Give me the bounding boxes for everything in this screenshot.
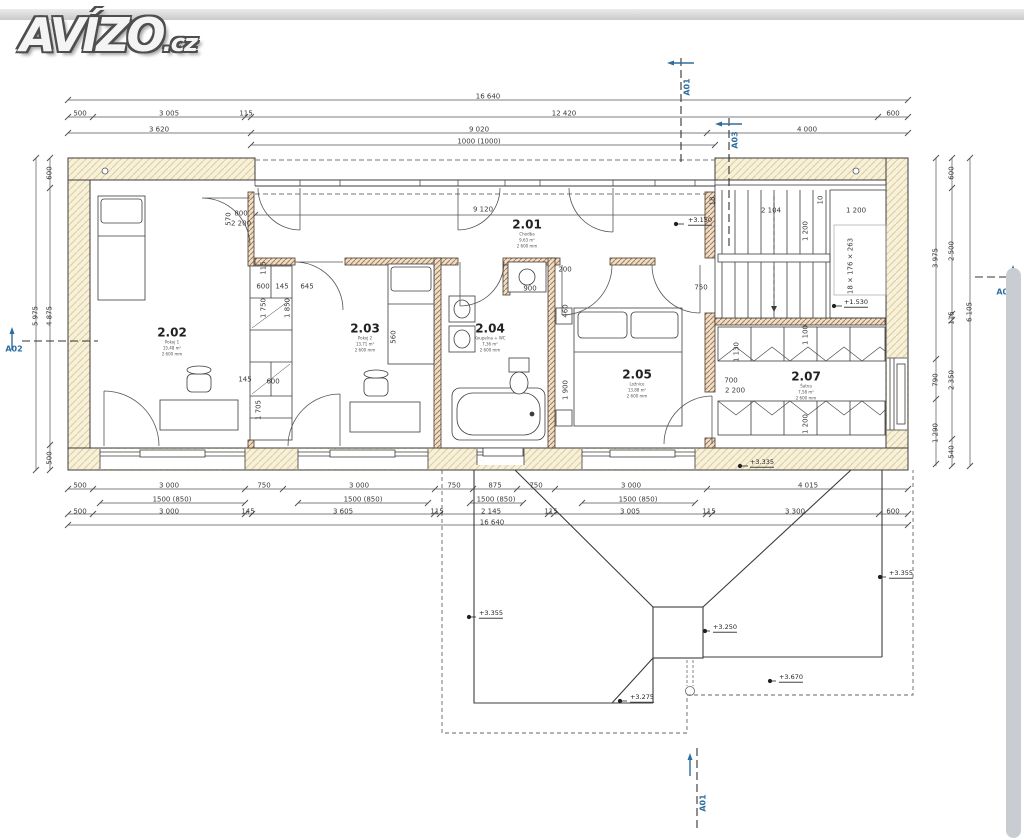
room-info: 2 600 mm <box>474 347 505 353</box>
dim-label: 18 × 176 × 263 <box>848 238 855 294</box>
dim-label: 500 <box>73 111 86 118</box>
dim-label: 600 <box>886 509 899 516</box>
elevation-label: +3.150 <box>688 217 712 226</box>
scrollbar-thumb[interactable] <box>1006 268 1021 838</box>
elevation-label: +3.275 <box>630 694 654 703</box>
dim-label: 5 975 <box>33 306 40 326</box>
dim-label: 3 005 <box>620 509 640 516</box>
dim-label: 1 750 <box>261 298 268 318</box>
dim-label: 115 <box>430 509 443 516</box>
dim-label: 1 850 <box>285 298 292 318</box>
room-label-2-07: 2.07 Šatna 7,58 m² 2 600 mm <box>791 369 821 400</box>
dim-label: 16 640 <box>480 520 505 527</box>
dim-label: 1 900 <box>563 380 570 400</box>
glazed-facade <box>255 180 715 186</box>
dim-label: 16 640 <box>476 94 501 101</box>
dim-label: 3 605 <box>333 509 353 516</box>
dim-label: 750 <box>257 483 270 490</box>
dim-label: 800 <box>234 211 247 218</box>
dim-label: 900 <box>523 286 536 293</box>
room-label-2-05: 2.05 Ložnice 13,88 m² 2 600 mm <box>622 367 652 398</box>
dim-label: 200 <box>558 267 571 274</box>
dim-label: 1 200 <box>803 414 810 434</box>
elevation-label: +3.335 <box>750 459 774 468</box>
dim-label: 12 420 <box>552 111 577 118</box>
elevation-label: +3.355 <box>889 570 913 579</box>
room-info: 2 600 mm <box>512 243 542 249</box>
dim-label: 700 <box>724 378 737 385</box>
dim-label: 790 <box>933 373 940 386</box>
section-label-a02: A02 <box>5 345 22 354</box>
dim-label: 1 200 <box>846 208 866 215</box>
vent-symbol <box>102 168 108 174</box>
dim-label: 560 <box>391 330 398 343</box>
room-number: 2.02 <box>157 325 187 339</box>
dim-label: 6 105 <box>967 302 974 322</box>
dim-label: 4 015 <box>798 483 818 490</box>
dim-label: 1 200 <box>803 221 810 241</box>
room-number: 2.01 <box>512 217 542 231</box>
dim-label: 3 300 <box>785 509 805 516</box>
dim-label: 115 <box>239 111 252 118</box>
dim-label: 500 <box>73 509 86 516</box>
dim-label: 1 290 <box>933 423 940 443</box>
dim-label: 3 005 <box>159 111 179 118</box>
dim-label: 115 <box>702 509 715 516</box>
dim-label: 4 875 <box>47 306 54 326</box>
elevation-label: +3.670 <box>779 674 803 683</box>
elevation-label: +3.250 <box>713 624 737 633</box>
dim-label: 460 <box>563 304 570 317</box>
dim-label: 600 <box>47 166 54 179</box>
dim-label: 1 100 <box>803 325 810 345</box>
dim-label: 1500 (850) <box>153 497 192 504</box>
dim-label: 4 000 <box>797 127 817 134</box>
dim-label: 3 620 <box>149 127 169 134</box>
dim-label: 600 <box>949 166 956 179</box>
dim-label: 600 <box>256 284 269 291</box>
furniture <box>98 196 682 440</box>
room-label-2-03: 2.03 Pokoj 2 13,71 m² 2 600 mm <box>350 321 380 352</box>
dim-label: 3 000 <box>621 483 641 490</box>
dim-label: 750 <box>447 483 460 490</box>
dim-label: 500 <box>73 483 86 490</box>
vent-symbol <box>853 168 859 174</box>
dim-label: 1500 (850) <box>619 497 658 504</box>
section-label-a01: A01 <box>699 794 708 811</box>
dim-label: 145 <box>241 509 254 516</box>
dim-label: 9 120 <box>473 207 493 214</box>
page: AVÍZO.cz <box>0 0 1024 838</box>
dim-label: 2 200 <box>231 221 251 228</box>
room-info: 2 600 mm <box>622 393 652 399</box>
dim-label: 1000 (1000) <box>457 139 500 146</box>
elevation-label: +1.530 <box>844 299 868 308</box>
room-number: 2.07 <box>791 369 821 383</box>
dim-label: 3 000 <box>349 483 369 490</box>
dim-label: 145 <box>238 377 251 384</box>
dim-label: 750 <box>529 483 542 490</box>
dim-label: 2 104 <box>761 208 781 215</box>
section-label-a01: A01 <box>683 78 692 95</box>
dim-label: 3 975 <box>933 248 940 268</box>
dim-label: 9 020 <box>469 127 489 134</box>
room-number: 2.04 <box>474 321 505 335</box>
dim-label: 115 <box>261 261 268 274</box>
dim-label: 1 130 <box>734 342 741 362</box>
dim-label: 1 705 <box>256 400 263 420</box>
dim-label: 875 <box>488 483 501 490</box>
dim-label: 500 <box>47 451 54 464</box>
roof-plan <box>442 470 913 733</box>
dim-label: 115 <box>544 509 557 516</box>
dim-label: 18 <box>710 197 717 206</box>
dim-label: 645 <box>300 284 313 291</box>
room-number: 2.05 <box>622 367 652 381</box>
dim-label: 3 000 <box>159 509 179 516</box>
dim-label: 1500 (850) <box>344 497 383 504</box>
dim-label: 2 200 <box>725 388 745 395</box>
dim-label: 600 <box>886 111 899 118</box>
dim-label: 3 000 <box>159 483 179 490</box>
dim-label: 750 <box>694 285 707 292</box>
dim-label: 2 145 <box>481 509 501 516</box>
roof-overhang-dashed <box>255 160 715 194</box>
room-label-2-02: 2.02 Pokoj 1 15,48 m² 2 600 mm <box>157 325 187 356</box>
dim-label: 2 500 <box>949 241 956 261</box>
dim-label: 145 <box>275 284 288 291</box>
dim-label: 2 350 <box>949 370 956 390</box>
dim-label: 540 <box>949 445 956 458</box>
section-label-a03: A03 <box>731 131 740 148</box>
room-info: 2 600 mm <box>350 347 380 353</box>
dim-label: 10 <box>818 196 825 205</box>
dim-label: 1500 (850) <box>477 497 516 504</box>
elevation-label: +3.355 <box>479 610 503 619</box>
room-info: 2 600 mm <box>791 395 821 401</box>
dim-label: 115 <box>949 311 956 324</box>
room-label-2-01: 2.01 Chodba 9,63 m² 2 600 mm <box>512 217 542 248</box>
room-number: 2.03 <box>350 321 380 335</box>
room-label-2-04: 2.04 Koupelna + WC 7,36 m² 2 600 mm <box>474 321 505 352</box>
room-info: 2 600 mm <box>157 351 187 357</box>
dim-label: 600 <box>266 379 279 386</box>
